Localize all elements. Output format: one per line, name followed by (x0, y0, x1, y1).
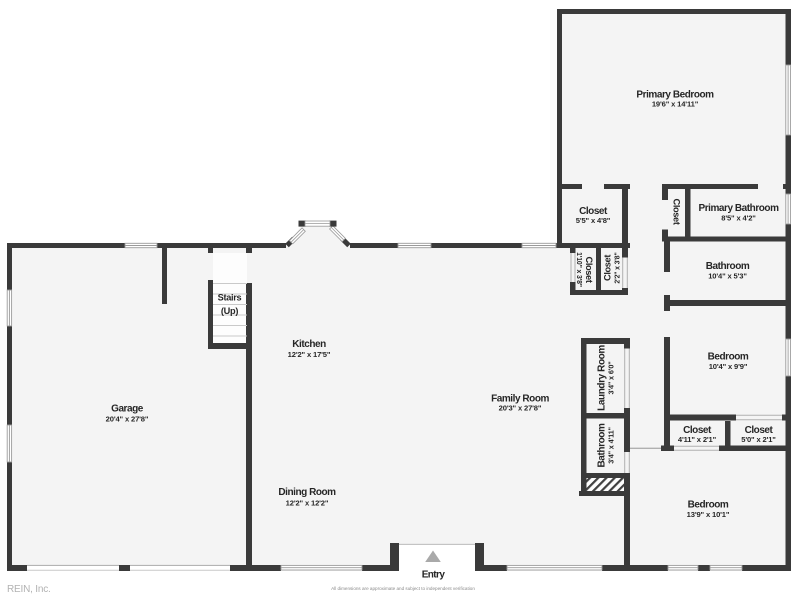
svg-text:Garage: Garage (111, 404, 144, 415)
svg-text:12'2" x 12'2": 12'2" x 12'2" (286, 499, 329, 508)
svg-text:5'0" x 2'1": 5'0" x 2'1" (741, 435, 776, 444)
svg-text:Stairs: Stairs (218, 293, 242, 303)
svg-text:4'11" x 2'1": 4'11" x 2'1" (678, 435, 717, 444)
svg-text:20'4" x 27'8": 20'4" x 27'8" (106, 415, 149, 424)
svg-text:2'2" x 3'8": 2'2" x 3'8" (615, 252, 622, 283)
svg-text:1'10" x 3'8": 1'10" x 3'8" (575, 252, 582, 287)
svg-text:Closet: Closet (584, 256, 594, 282)
svg-text:Dining Room: Dining Room (278, 487, 336, 498)
svg-text:(Up): (Up) (221, 306, 238, 316)
svg-text:8'5" x 4'2": 8'5" x 4'2" (721, 214, 756, 223)
svg-text:Bedroom: Bedroom (688, 500, 729, 511)
svg-text:13'9" x 10'1": 13'9" x 10'1" (687, 510, 730, 519)
svg-text:Entry: Entry (422, 570, 446, 581)
svg-text:3'4" x 6'0": 3'4" x 6'0" (607, 361, 616, 394)
svg-text:Closet: Closet (672, 198, 682, 224)
svg-text:All dimensions are approximate: All dimensions are approximate and subje… (331, 586, 475, 591)
svg-text:Primary Bathroom: Primary Bathroom (698, 203, 779, 214)
svg-text:3'4" x 4'11": 3'4" x 4'11" (607, 427, 616, 464)
svg-text:5'5" x 4'8": 5'5" x 4'8" (576, 216, 611, 225)
svg-text:Bedroom: Bedroom (708, 352, 749, 363)
svg-text:Closet: Closet (603, 255, 613, 281)
svg-text:REIN, Inc.: REIN, Inc. (7, 584, 51, 595)
svg-text:10'4" x 5'3": 10'4" x 5'3" (708, 272, 747, 281)
svg-text:10'4" x 9'9": 10'4" x 9'9" (709, 362, 748, 371)
svg-text:19'6" x 14'11": 19'6" x 14'11" (652, 100, 699, 109)
svg-text:20'3" x 27'8": 20'3" x 27'8" (499, 404, 542, 413)
svg-text:Bathroom: Bathroom (706, 261, 750, 272)
svg-text:Kitchen: Kitchen (292, 339, 326, 350)
svg-text:12'2" x 17'5": 12'2" x 17'5" (288, 350, 331, 359)
